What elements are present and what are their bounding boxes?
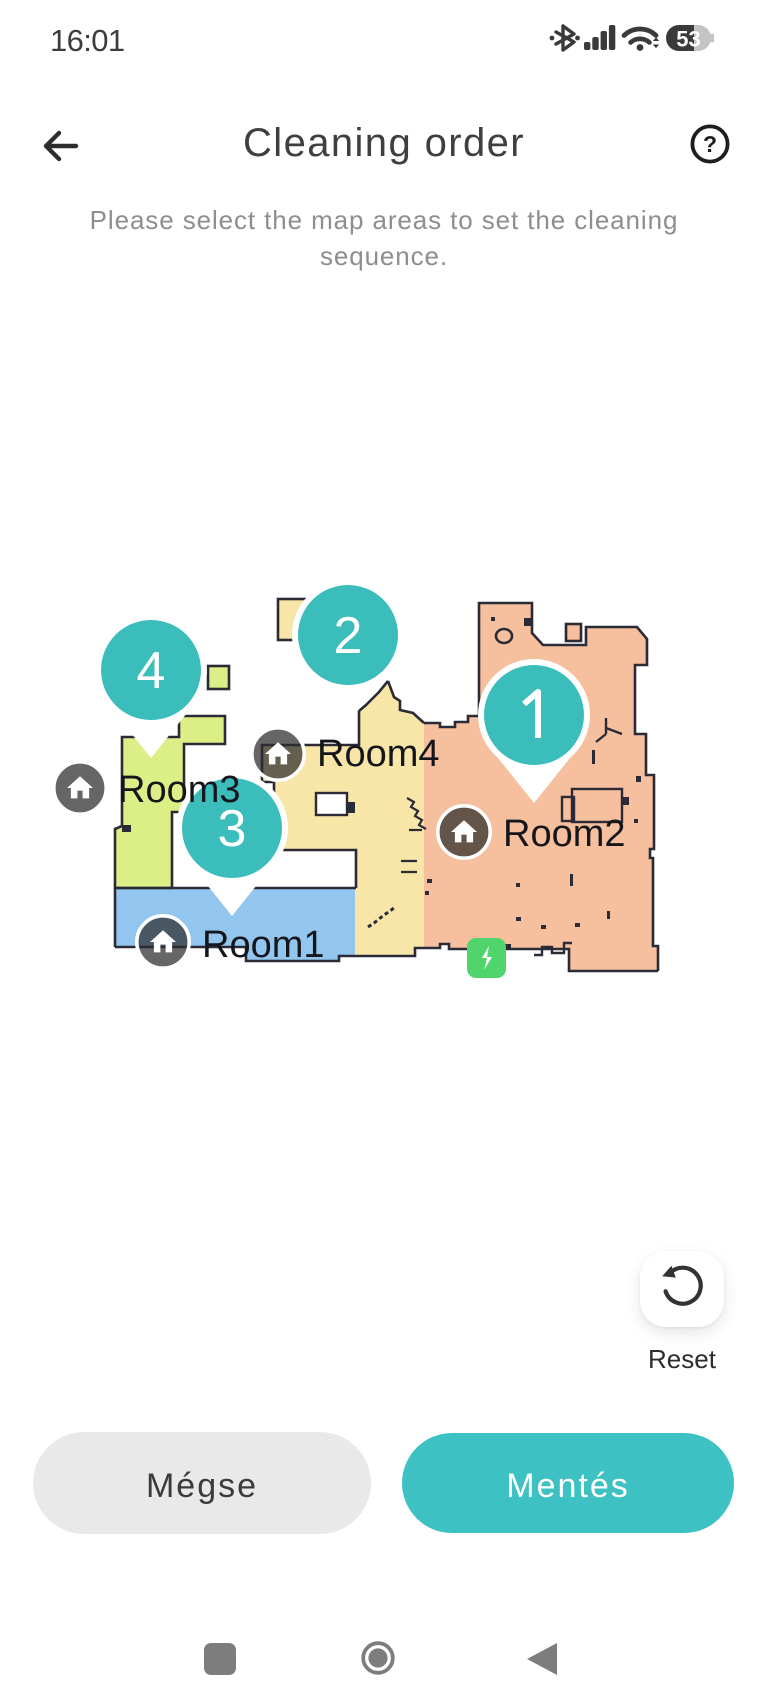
svg-text:4: 4 — [137, 642, 166, 700]
svg-text:Room1: Room1 — [202, 924, 325, 966]
svg-text:53: 53 — [676, 27, 700, 52]
svg-text:Room2: Room2 — [503, 813, 626, 855]
svg-text:Room3: Room3 — [118, 769, 241, 811]
svg-text:?: ? — [703, 131, 717, 157]
svg-text:Room4: Room4 — [317, 733, 440, 775]
svg-text:2: 2 — [334, 607, 363, 665]
